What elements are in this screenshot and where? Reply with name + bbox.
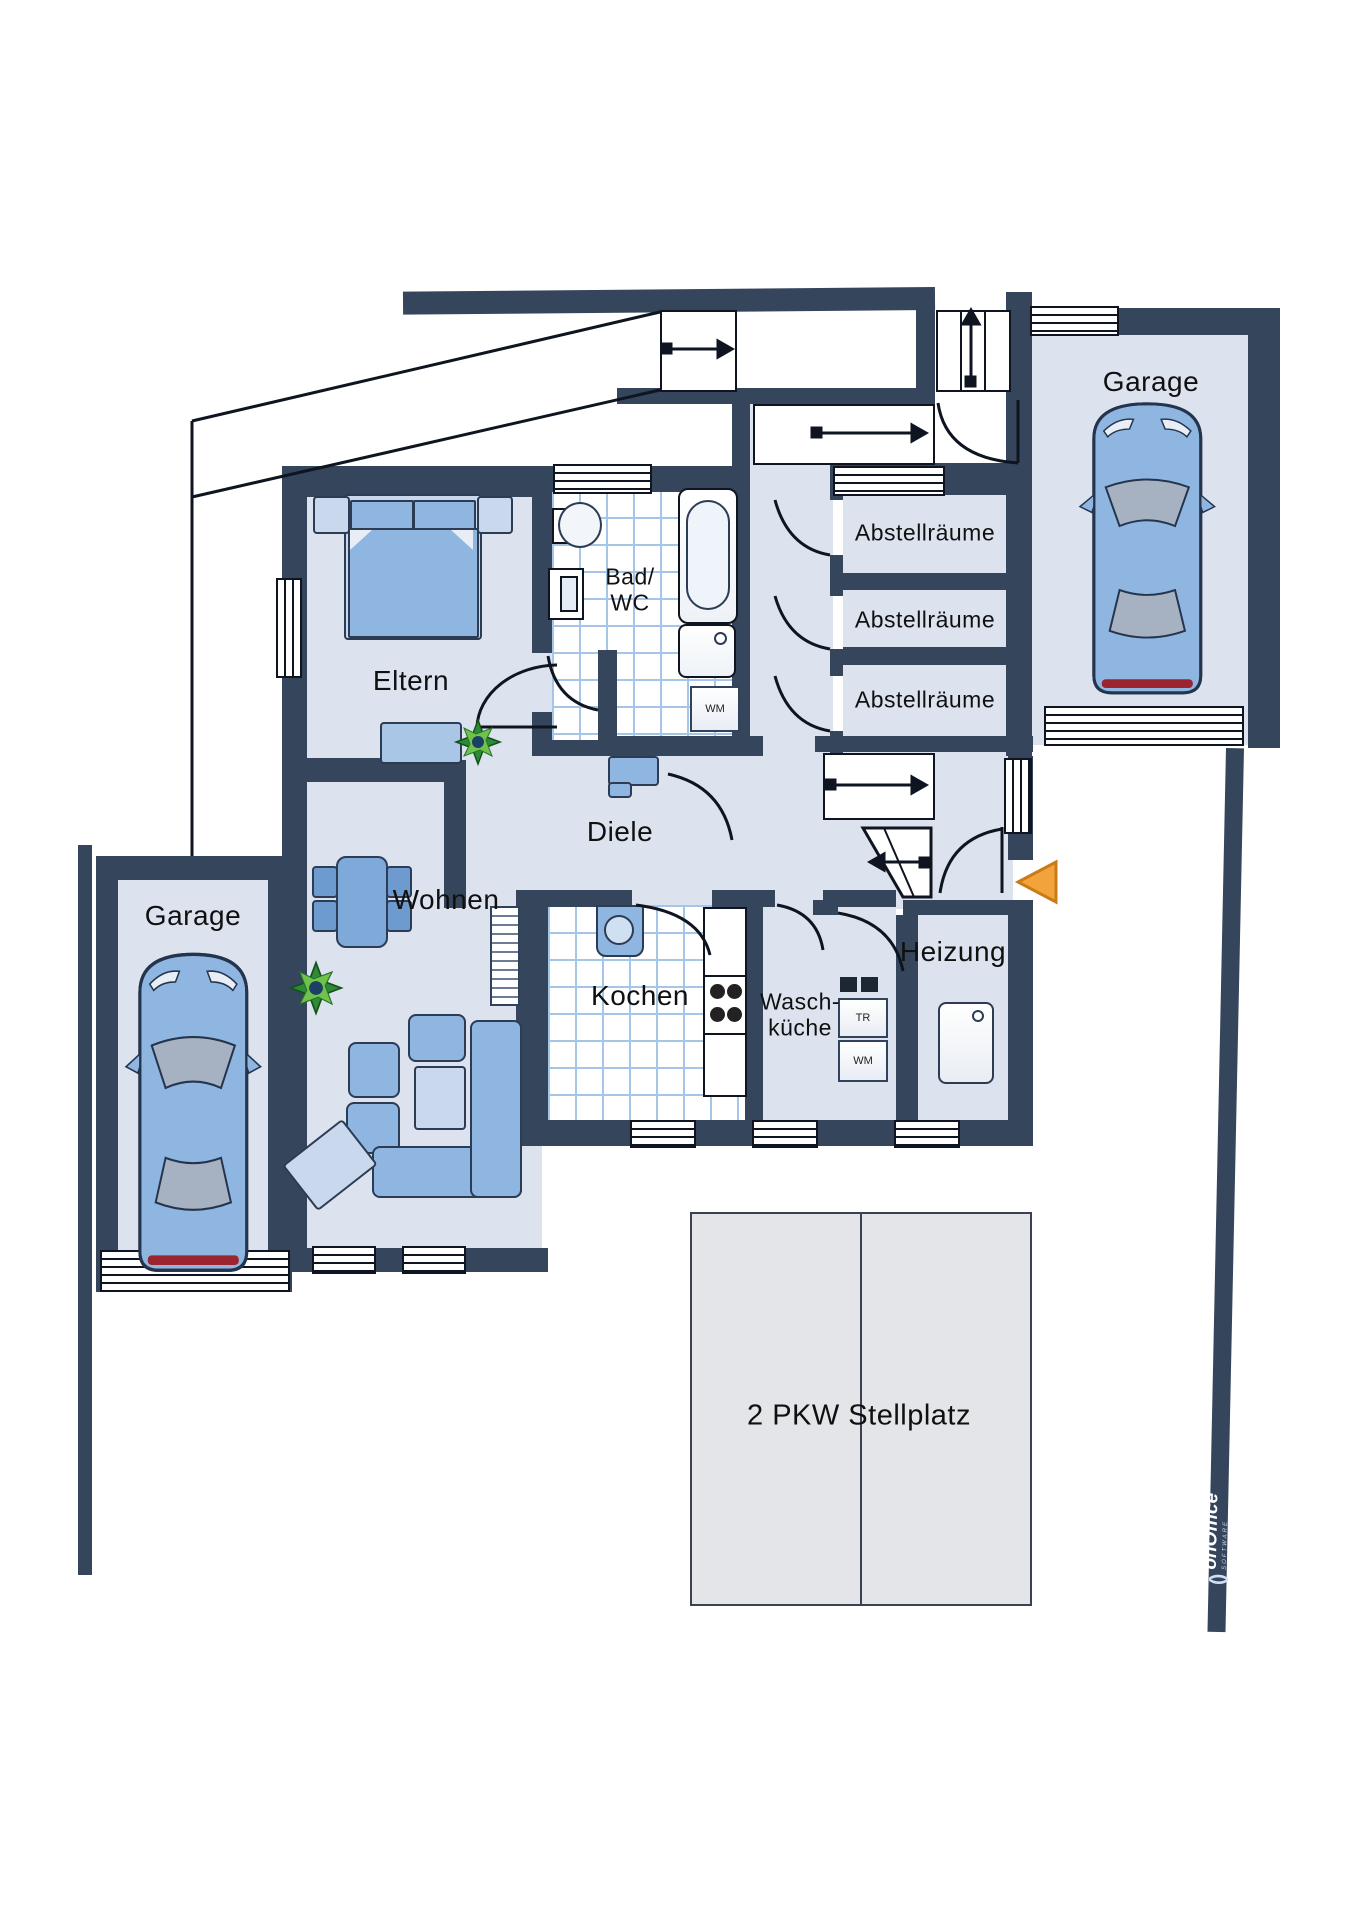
coffee-table [414, 1066, 466, 1130]
landing-area [737, 312, 916, 388]
bed-body [348, 528, 479, 638]
window-eltern [276, 578, 302, 678]
onoffice-logo: () onOfficeSOFTWARE [1202, 1464, 1235, 1615]
fence-right: () onOfficeSOFTWARE [1207, 748, 1244, 1632]
wall-segment [830, 649, 843, 676]
stove [703, 975, 747, 1035]
wall-garage-right [1248, 308, 1280, 748]
wall-right-lower [1008, 916, 1033, 1146]
utility-box [861, 977, 878, 992]
armchair [408, 1014, 466, 1062]
bathtub-inner [686, 500, 730, 610]
boiler [938, 1002, 994, 1084]
window-kochen [630, 1120, 696, 1148]
wall-segment [830, 555, 843, 596]
entry-landing-box [660, 310, 737, 392]
window-bad [553, 464, 652, 494]
room-label-bad-2: WC [610, 590, 649, 617]
shower [678, 624, 736, 678]
wall-garage-left-top [96, 856, 292, 880]
stairs-up-garage [936, 310, 1011, 392]
garage-left-gate [100, 1250, 290, 1292]
window-abstell [833, 466, 945, 496]
room-label-heizung: Heizung [900, 936, 1006, 968]
armchair [348, 1042, 400, 1098]
wall-eltern-top [282, 466, 552, 497]
bed-pillow [413, 500, 476, 531]
dining-chair [312, 900, 338, 932]
dryer: TR [838, 998, 888, 1038]
room-label-abstell-1: Abstellräume [855, 520, 995, 547]
room-label-garage-top: Garage [1103, 366, 1199, 398]
shower-drain [714, 632, 727, 645]
dining-chair [312, 866, 338, 898]
room-label-wasch-2: küche [768, 1015, 832, 1042]
garage-top-door [1030, 306, 1119, 336]
stairs-mid-flight1 [823, 753, 935, 820]
room-label-abstell-2: Abstellräume [855, 607, 995, 634]
sideboard-eltern [380, 722, 462, 764]
fence-left [78, 845, 92, 1575]
wall-garage-left-east [268, 880, 292, 1292]
onoffice-logo-icon: () [1206, 1575, 1229, 1585]
wall-garage-left-west [96, 880, 118, 1292]
washing-machine-bad: WM [690, 686, 740, 732]
washing-machine: WM [838, 1040, 888, 1082]
room-label-diele: Diele [587, 816, 653, 848]
parking-label: 2 PKW Stellplatz [747, 1400, 971, 1433]
utility-box [840, 977, 857, 992]
wall-stairhall-right [1008, 904, 1033, 916]
site-line [192, 312, 660, 421]
wall-heiz-top [813, 900, 838, 915]
shelf-wohnen [490, 906, 520, 1006]
nightstand [313, 496, 350, 534]
window-heizung [894, 1120, 960, 1148]
room-label-bad-1: Bad/ [605, 564, 654, 591]
sofa-right [470, 1020, 522, 1198]
room-label-wasch-1: Wasch- [760, 989, 840, 1016]
wall-bad-bottom [532, 740, 617, 756]
room-label-garage-left: Garage [145, 900, 241, 932]
dining-table [336, 856, 388, 948]
toilet-bowl [558, 502, 602, 548]
garage-top-gate [1044, 706, 1244, 746]
wall-segment [1006, 472, 1032, 756]
bed-pillow [350, 500, 414, 531]
washbasin-inner [560, 576, 578, 612]
nightstand [477, 496, 513, 534]
window-stairhall [1004, 758, 1032, 834]
room-label-wohnen: Wohnen [393, 884, 500, 916]
wall-segment [815, 736, 1033, 752]
wall-wasch-top [763, 890, 775, 907]
window-wasch [752, 1120, 818, 1148]
entry-ramp-corridor [753, 404, 935, 465]
entrance-marker [1018, 862, 1056, 902]
floor-plan: 2 PKW Stellplatz () onOfficeSOFTWARE [0, 0, 1357, 1920]
wall-abstell-divider [843, 647, 1008, 665]
window-wohnen-1 [312, 1246, 376, 1274]
kitchen-sink-bowl [604, 915, 634, 945]
onoffice-logo-text: onOfficeSOFTWARE [1203, 1493, 1235, 1570]
boiler-cap [972, 1010, 984, 1022]
wall-kochen-wasch [745, 890, 763, 1144]
room-label-eltern: Eltern [373, 665, 449, 697]
wall-abstell-divider [843, 573, 1008, 590]
window-wohnen-2 [402, 1246, 466, 1274]
room-label-kochen: Kochen [591, 980, 689, 1012]
room-label-abstell-3: Abstellräume [855, 687, 995, 714]
sideboard-diele-foot [608, 782, 632, 798]
